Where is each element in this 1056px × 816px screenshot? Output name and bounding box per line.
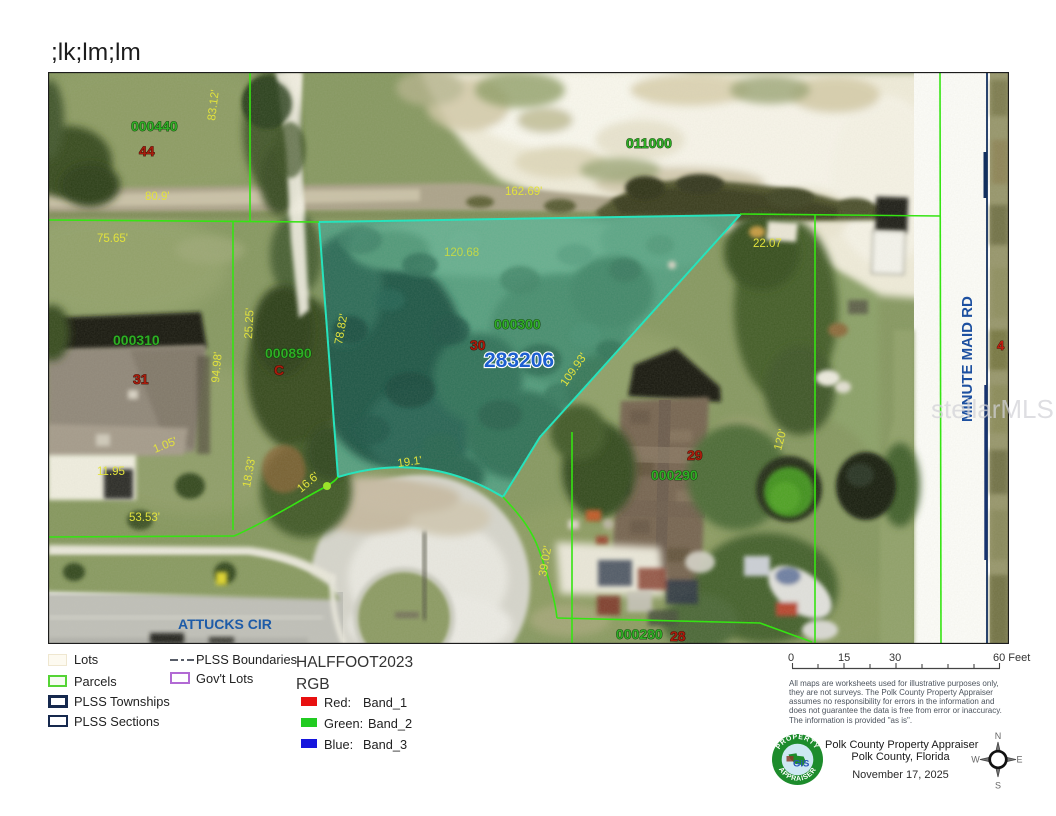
svg-text:25.25': 25.25' — [243, 308, 257, 340]
svg-text:011000: 011000 — [626, 135, 672, 151]
svg-text:28: 28 — [670, 628, 686, 644]
svg-text:4: 4 — [997, 338, 1005, 353]
svg-text:120.68: 120.68 — [444, 247, 479, 259]
svg-text:44: 44 — [139, 143, 155, 159]
svg-text:15: 15 — [838, 652, 850, 664]
svg-text:162.69': 162.69' — [505, 186, 542, 198]
svg-text:000890: 000890 — [265, 345, 312, 361]
svg-text:000440: 000440 — [131, 118, 178, 134]
svg-text:29: 29 — [687, 447, 703, 463]
svg-text:C: C — [274, 362, 284, 378]
svg-text:GiS: GiS — [793, 759, 809, 770]
svg-text:000300: 000300 — [494, 316, 541, 332]
svg-text:53.53': 53.53' — [129, 512, 160, 524]
svg-text:S: S — [995, 781, 1001, 791]
svg-text:75.65': 75.65' — [97, 233, 128, 245]
svg-text:11.95: 11.95 — [97, 466, 125, 478]
svg-text:N: N — [995, 731, 1002, 741]
svg-text:000290: 000290 — [651, 467, 698, 483]
svg-text:000280: 000280 — [616, 626, 663, 642]
svg-text:22.07: 22.07 — [753, 238, 782, 250]
svg-text:283206: 283206 — [484, 349, 554, 372]
svg-text:W: W — [971, 755, 980, 765]
svg-text:E: E — [1016, 755, 1022, 765]
svg-text:60 Feet: 60 Feet — [993, 652, 1030, 664]
svg-text:31: 31 — [133, 371, 149, 387]
svg-text:ATTUCKS CIR: ATTUCKS CIR — [178, 616, 272, 632]
svg-text:0: 0 — [788, 652, 794, 664]
svg-text:30: 30 — [889, 652, 901, 664]
svg-text:000310: 000310 — [113, 332, 160, 348]
svg-text:80.9': 80.9' — [145, 191, 170, 203]
